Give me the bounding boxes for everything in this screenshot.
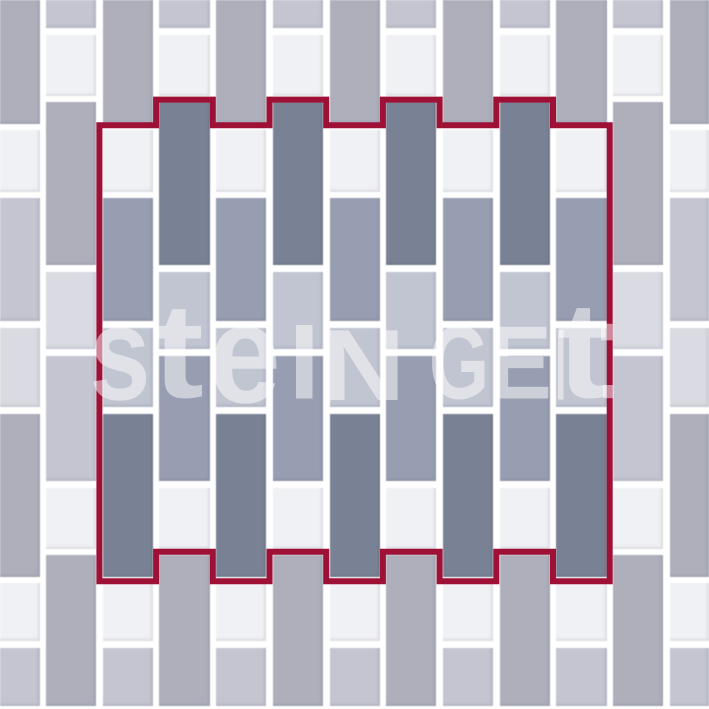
svg-text:E: E bbox=[488, 305, 552, 421]
svg-text:e: e bbox=[208, 275, 281, 433]
svg-text:t: t bbox=[152, 275, 203, 426]
svg-text:G: G bbox=[429, 306, 489, 421]
svg-text:s: s bbox=[89, 279, 150, 428]
svg-text:t: t bbox=[557, 273, 608, 426]
svg-text:N: N bbox=[322, 309, 405, 422]
